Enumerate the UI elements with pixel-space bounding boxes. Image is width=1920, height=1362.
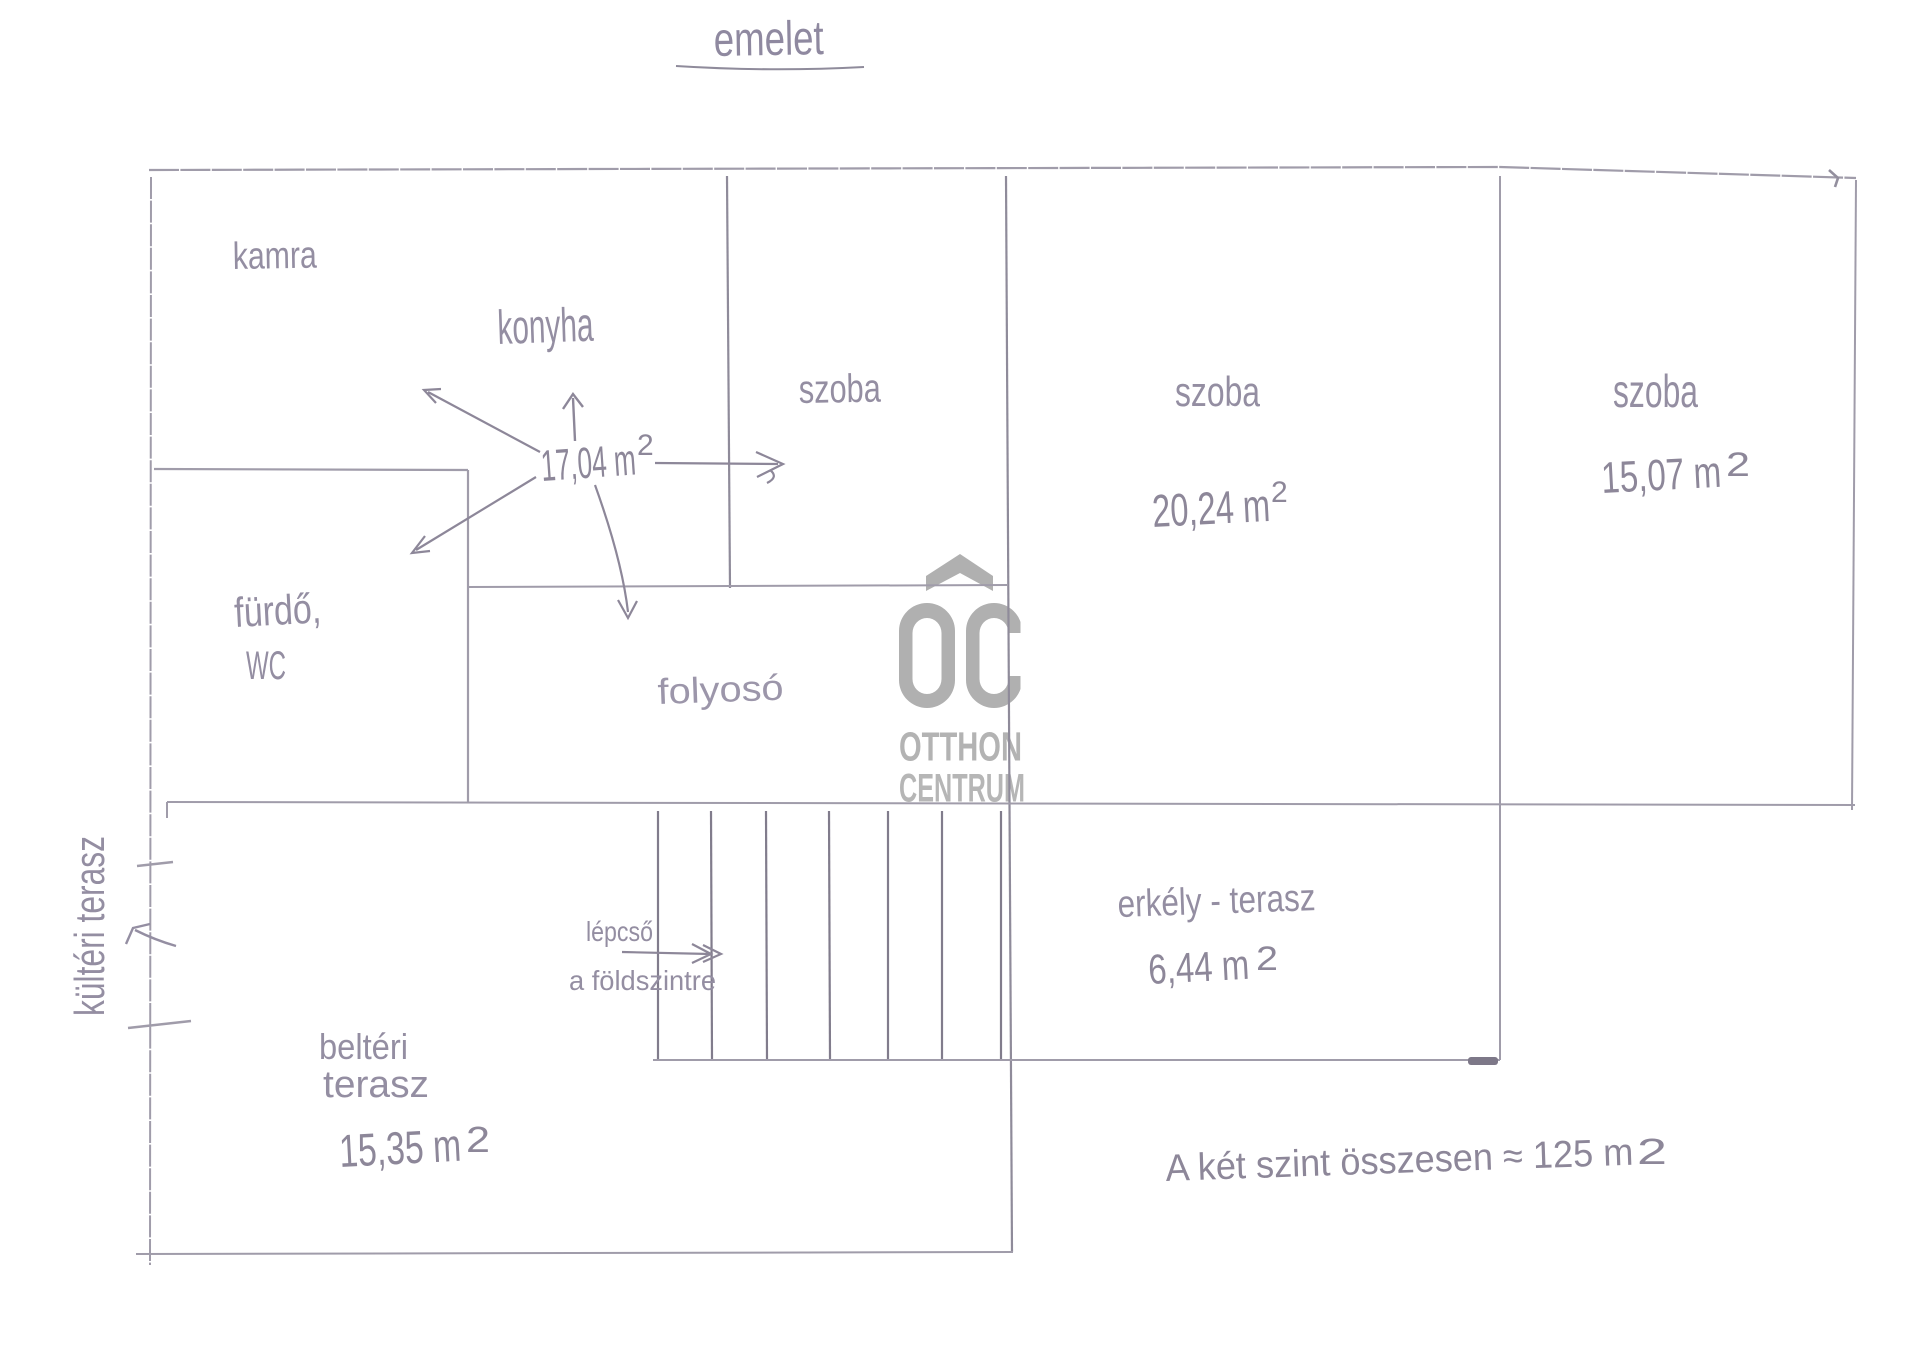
- svg-text:6,44 m: 6,44 m: [1147, 941, 1250, 993]
- svg-text:2: 2: [1271, 476, 1288, 509]
- svg-text:szoba: szoba: [798, 367, 881, 412]
- svg-text:beltéri: beltéri: [319, 1026, 408, 1067]
- svg-text:WC: WC: [246, 644, 286, 688]
- svg-text:fürdő,: fürdő,: [233, 584, 322, 635]
- svg-text:konyha: konyha: [497, 299, 595, 355]
- svg-text:szoba: szoba: [1175, 368, 1260, 415]
- svg-text:2: 2: [1726, 446, 1750, 484]
- svg-text:folyosó: folyosó: [657, 667, 784, 712]
- svg-text:kamra: kamra: [232, 235, 317, 278]
- svg-text:szoba: szoba: [1613, 365, 1698, 417]
- svg-text:15,07 m: 15,07 m: [1600, 448, 1722, 503]
- svg-text:20,24 m: 20,24 m: [1151, 479, 1272, 537]
- svg-text:OTTHON: OTTHON: [899, 724, 1022, 770]
- svg-text:emelet: emelet: [713, 12, 824, 67]
- svg-text:17,04 m: 17,04 m: [539, 435, 637, 491]
- svg-text:2: 2: [1256, 940, 1278, 978]
- svg-text:terasz: terasz: [323, 1064, 429, 1106]
- svg-text:2: 2: [637, 429, 654, 462]
- svg-text:2: 2: [466, 1119, 490, 1160]
- svg-text:erkély - terasz: erkély - terasz: [1117, 877, 1316, 926]
- svg-text:2: 2: [1637, 1131, 1667, 1172]
- svg-text:lépcső: lépcső: [586, 916, 653, 947]
- svg-text:15,35 m: 15,35 m: [338, 1119, 463, 1177]
- svg-text:a földszintre: a földszintre: [569, 965, 716, 996]
- svg-text:kültéri terasz: kültéri terasz: [66, 836, 113, 1016]
